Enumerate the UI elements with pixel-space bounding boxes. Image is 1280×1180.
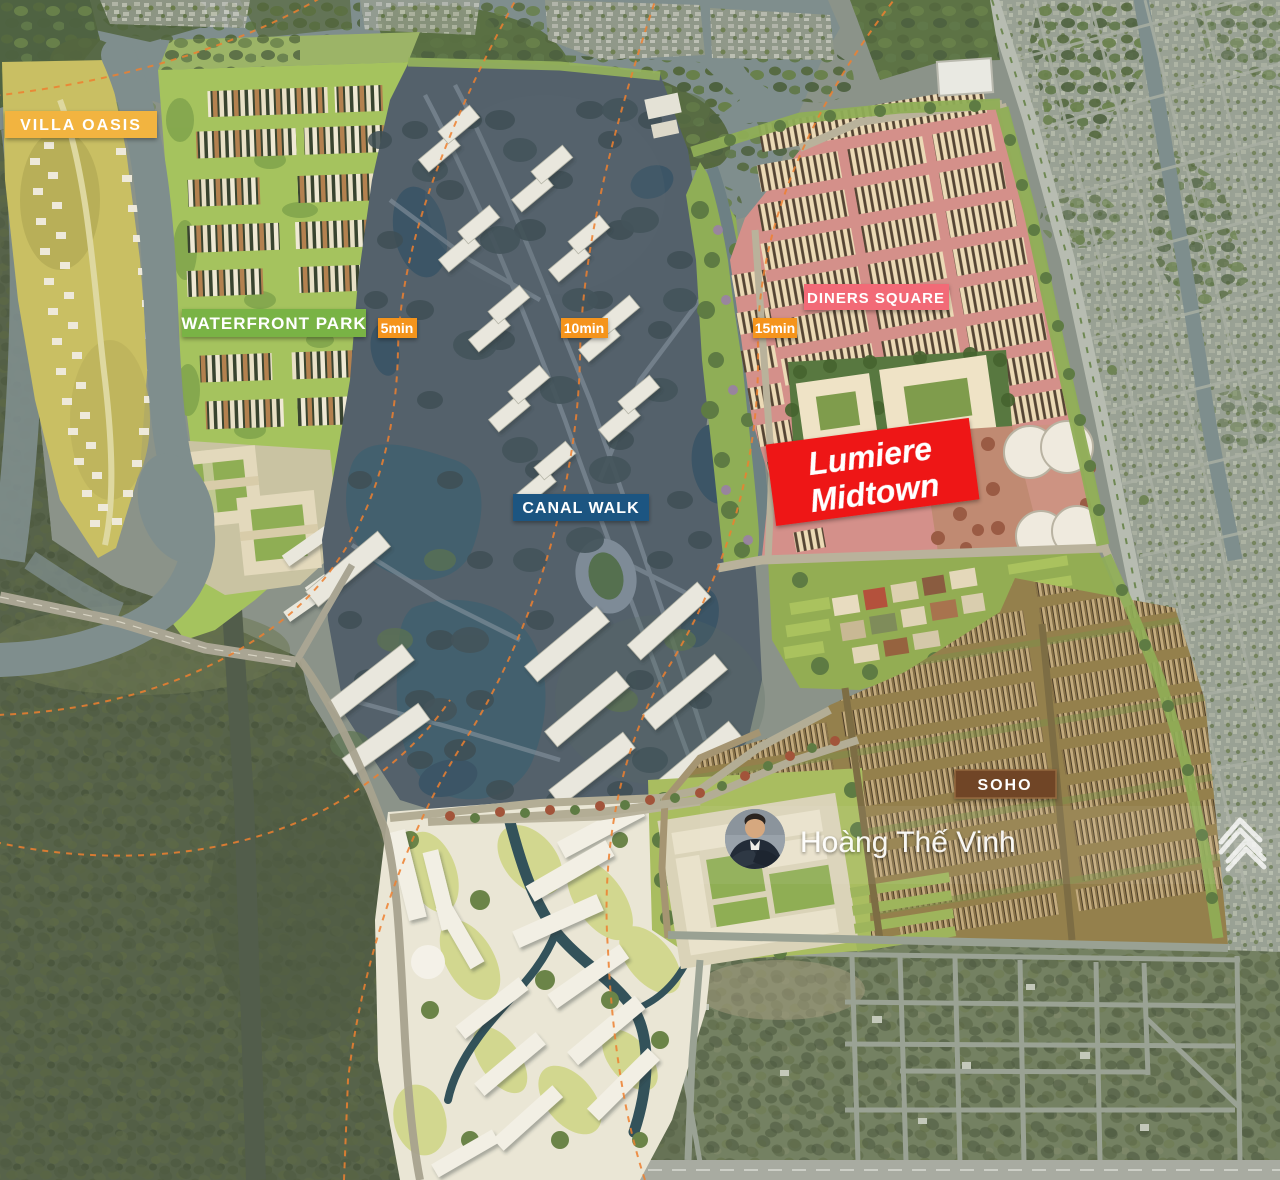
svg-text:CANAL WALK: CANAL WALK xyxy=(522,500,639,517)
svg-text:10min: 10min xyxy=(564,320,604,336)
svg-text:15min: 15min xyxy=(755,320,795,336)
svg-text:SOHO: SOHO xyxy=(977,777,1032,794)
svg-text:VILLA OASIS: VILLA OASIS xyxy=(20,117,142,134)
svg-text:Hoàng Thế Vinh: Hoàng Thế Vinh xyxy=(800,826,1016,859)
svg-text:5min: 5min xyxy=(381,320,414,336)
svg-text:WATERFRONT PARK: WATERFRONT PARK xyxy=(181,314,366,333)
svg-text:DINERS SQUARE: DINERS SQUARE xyxy=(807,290,945,307)
